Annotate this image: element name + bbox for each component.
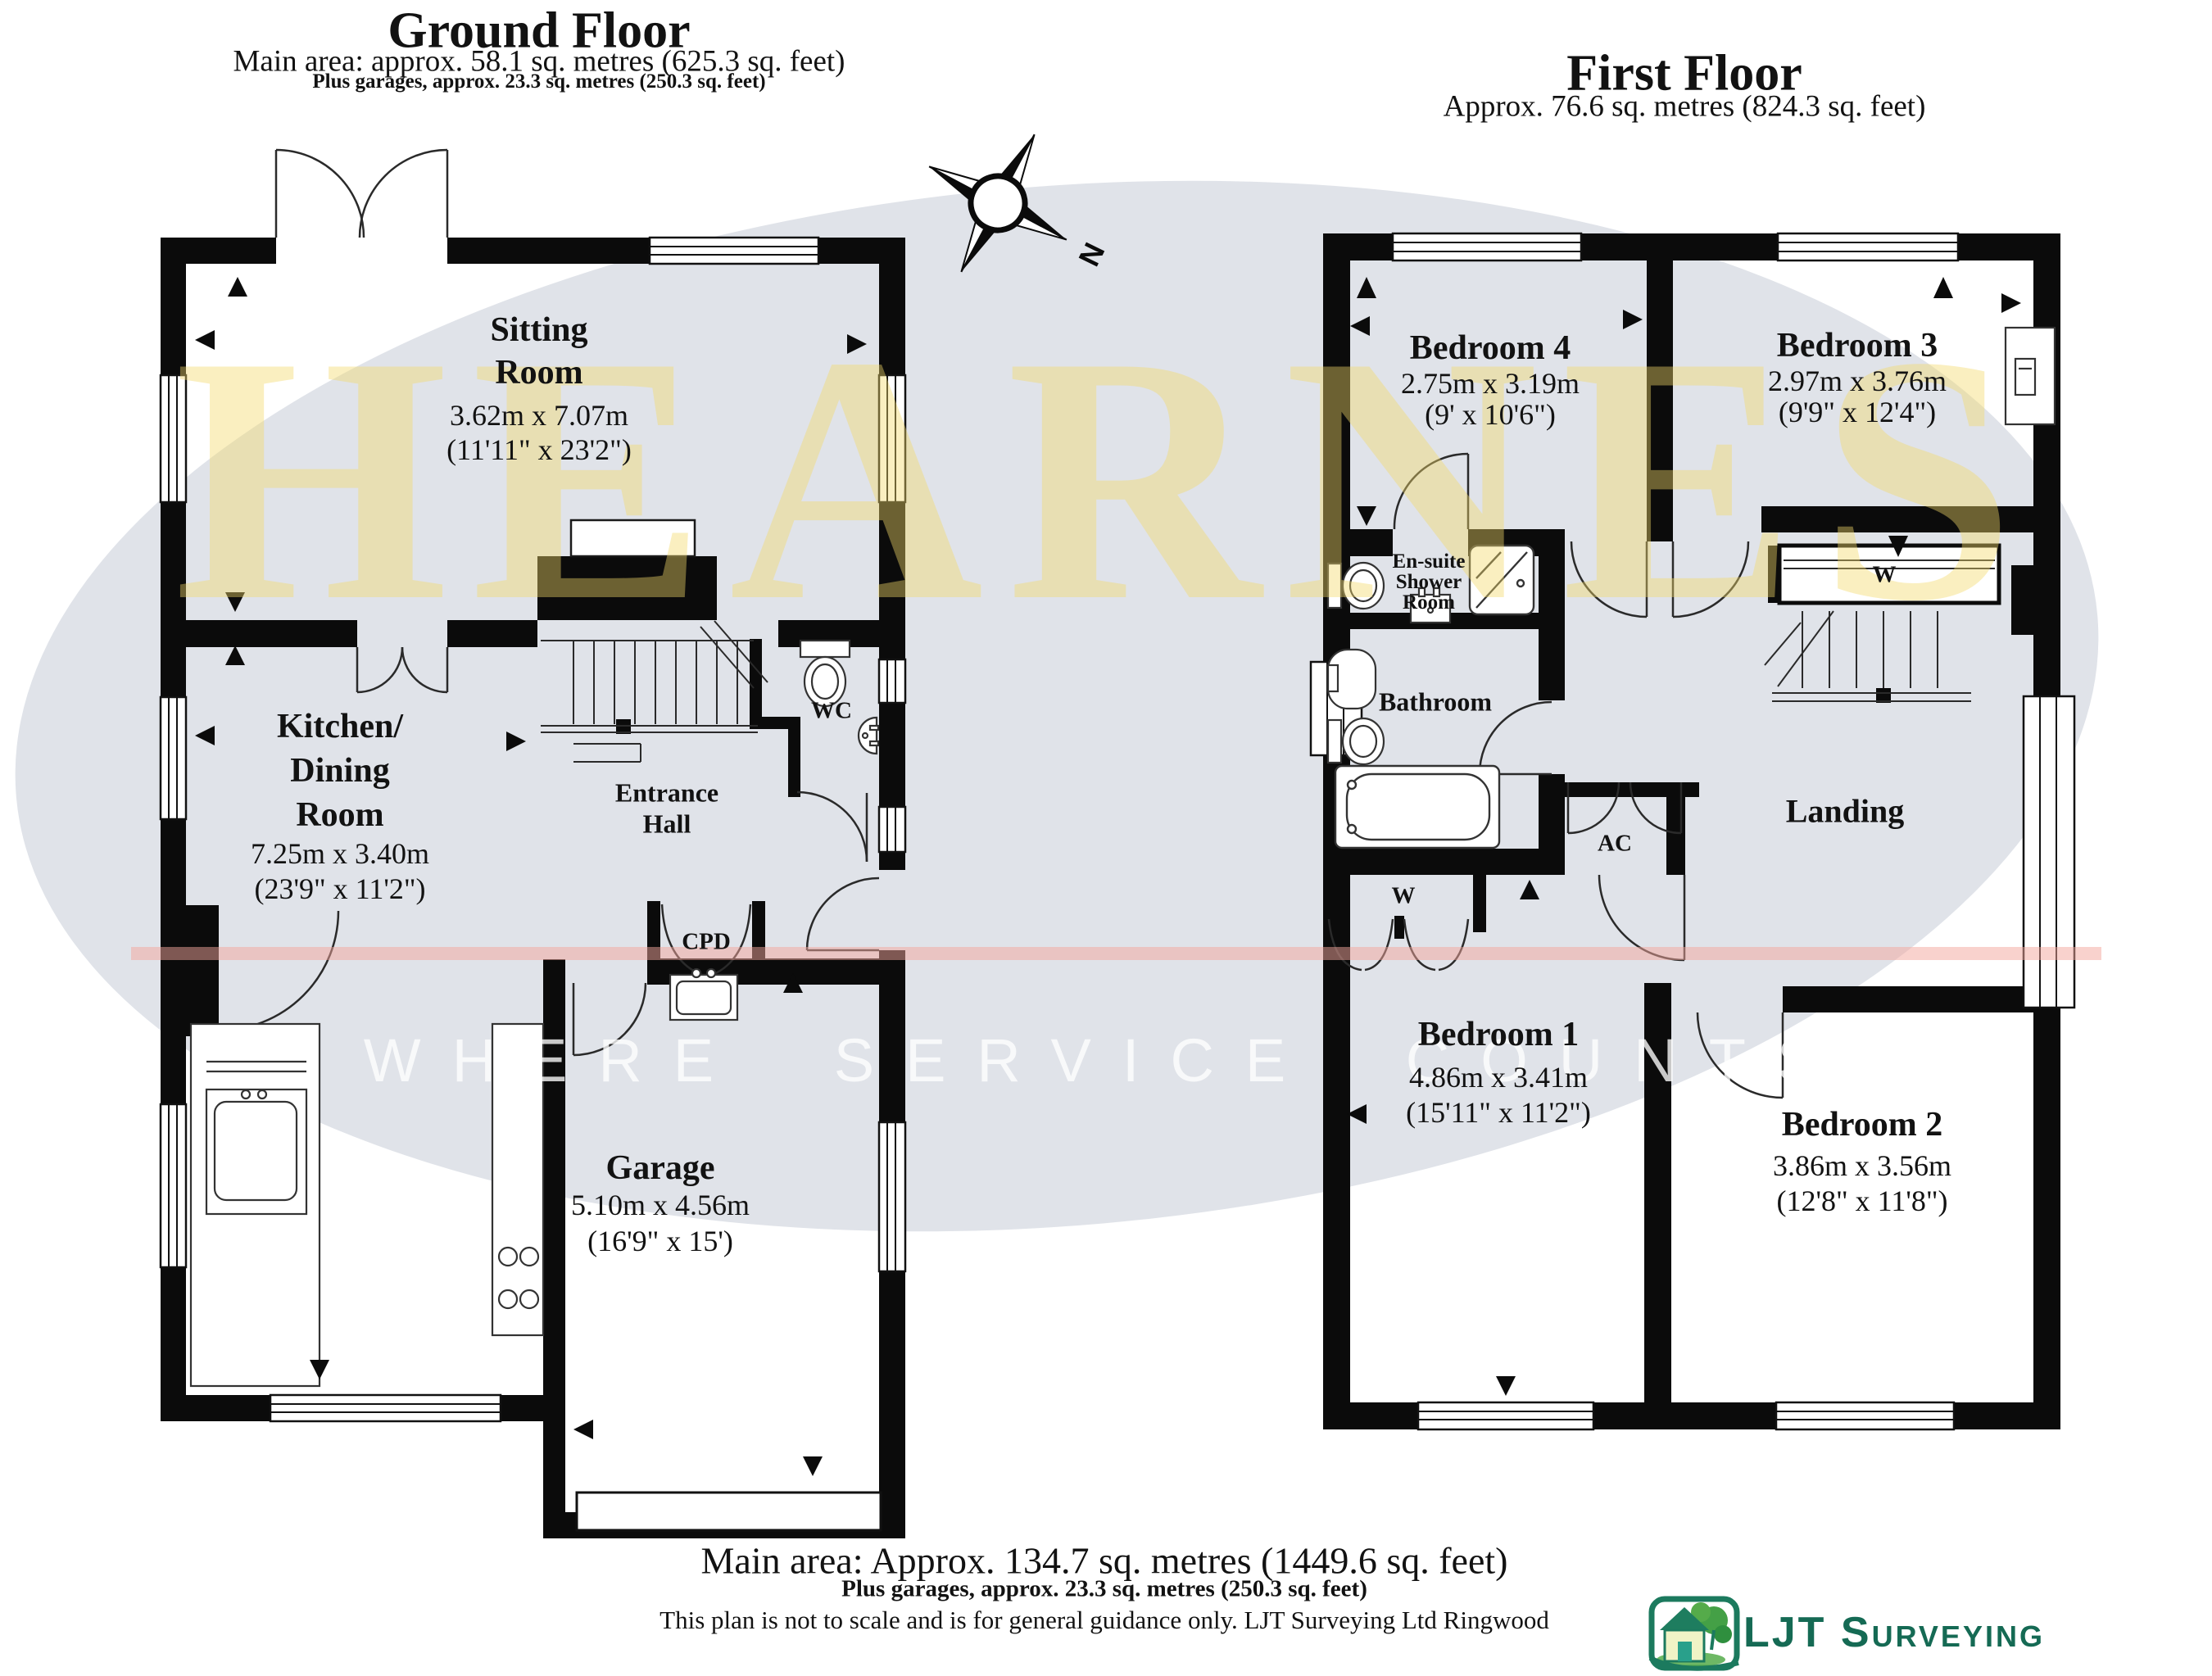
ljt-logo-icon xyxy=(1650,1599,1738,1669)
wc-door xyxy=(797,792,867,862)
wc-label: WC xyxy=(811,698,852,725)
kitchen-counter xyxy=(191,1024,320,1386)
bathroom-bath xyxy=(1335,766,1499,848)
ensuite-shower xyxy=(1470,546,1534,614)
bathroom-toilet xyxy=(1328,718,1384,764)
bedroom1-dims-m: 4.86m x 3.41m xyxy=(1409,1060,1588,1094)
landing-label: Landing xyxy=(1786,792,1905,831)
bathroom-basin xyxy=(1328,650,1376,709)
kitchen-name-1: Kitchen/ xyxy=(277,707,403,746)
ensuite-door xyxy=(1394,454,1468,529)
bedroom3-dims-m: 2.97m x 3.76m xyxy=(1768,364,1947,398)
sitting-room-name-2: Room xyxy=(495,353,582,392)
bedroom3-door xyxy=(1673,541,1748,617)
kitchen-double-doors xyxy=(357,647,447,692)
kitchen-name-2: Dining xyxy=(290,751,389,790)
ensuite-toilet xyxy=(1328,563,1384,609)
bedroom3-name: Bedroom 3 xyxy=(1777,326,1938,365)
watermark-line xyxy=(131,947,2101,960)
garage-door-internal xyxy=(573,983,646,1055)
wardrobe-landing-label: W xyxy=(1873,562,1897,589)
ground-floor-garage-note: Plus garages, approx. 23.3 sq. metres (2… xyxy=(312,70,765,93)
bedroom1-name: Bedroom 1 xyxy=(1418,1015,1579,1054)
garage-name: Garage xyxy=(606,1148,715,1188)
garage-door xyxy=(577,1493,881,1530)
bedroom2-dims-ft: (12'8" x 11'8") xyxy=(1776,1184,1947,1218)
bedroom2-dims-m: 3.86m x 3.56m xyxy=(1773,1148,1951,1183)
kitchen-dims-ft: (23'9" x 11'2") xyxy=(254,872,425,906)
footer-garages: Plus garages, approx. 23.3 sq. metres (2… xyxy=(841,1576,1367,1603)
ensuite-name-1: En-suite xyxy=(1393,550,1466,573)
bedroom4-dims-m: 2.75m x 3.19m xyxy=(1401,366,1580,401)
garage-dims-m: 5.10m x 4.56m xyxy=(571,1188,750,1222)
kitchen-hob xyxy=(492,1024,543,1335)
ensuite-name-2: Shower xyxy=(1396,571,1462,594)
ensuite-name-3: Room xyxy=(1403,591,1455,614)
bedroom4-dims-ft: (9' x 10'6") xyxy=(1425,397,1556,432)
cpd-label: CPD xyxy=(682,929,731,956)
compass-north-label: N xyxy=(1072,238,1111,271)
floorplan-page: N HEARNES WHERE SERVICE COUNTS Ground Fl… xyxy=(0,0,2212,1676)
first-floor-area: Approx. 76.6 sq. metres (824.3 sq. feet) xyxy=(1444,89,1926,125)
ljt-logo-text: LJT Surveying xyxy=(1743,1608,2045,1657)
kitchen-name-3: Room xyxy=(296,795,383,835)
bedroom4-door xyxy=(1571,541,1647,617)
sitting-room-dims-ft: (11'11" x 23'2") xyxy=(446,433,632,467)
kitchen-dims-m: 7.25m x 3.40m xyxy=(251,836,429,871)
bedroom3-dims-ft: (9'9" x 12'4") xyxy=(1779,395,1936,429)
garage-sink xyxy=(670,969,737,1020)
first-floor-stairs xyxy=(1765,611,1971,701)
bedroom3-chimney xyxy=(2006,328,2055,424)
ground-floor-stairs xyxy=(541,621,768,762)
sitting-room-name-1: Sitting xyxy=(490,310,587,350)
entrance-hall-name-1: Entrance xyxy=(615,778,718,809)
footer-disclaimer: This plan is not to scale and is for gen… xyxy=(660,1606,1549,1635)
garage-dims-ft: (16'9" x 15') xyxy=(587,1224,733,1258)
entrance-hall-name-2: Hall xyxy=(643,809,691,840)
bedroom4-name: Bedroom 4 xyxy=(1410,328,1571,368)
bedroom2-door xyxy=(1698,1012,1783,1098)
wc-toilet xyxy=(800,641,850,706)
compass-rose: N xyxy=(893,98,1145,330)
sitting-room-dims-m: 3.62m x 7.07m xyxy=(450,398,628,433)
bathroom-label: Bathroom xyxy=(1379,687,1492,718)
wc-basin xyxy=(859,718,878,754)
wardrobe-bathroom-label: W xyxy=(1392,883,1416,910)
fireplace-hearth xyxy=(571,520,695,556)
bedroom1-dims-ft: (15'11" x 11'2") xyxy=(1406,1095,1591,1130)
bedroom2-name: Bedroom 2 xyxy=(1782,1105,1942,1144)
front-door xyxy=(807,878,879,950)
kitchen-door xyxy=(219,911,338,1031)
patio-double-doors xyxy=(276,150,447,238)
compass-circle xyxy=(961,166,1034,239)
ac-label: AC xyxy=(1598,831,1632,858)
